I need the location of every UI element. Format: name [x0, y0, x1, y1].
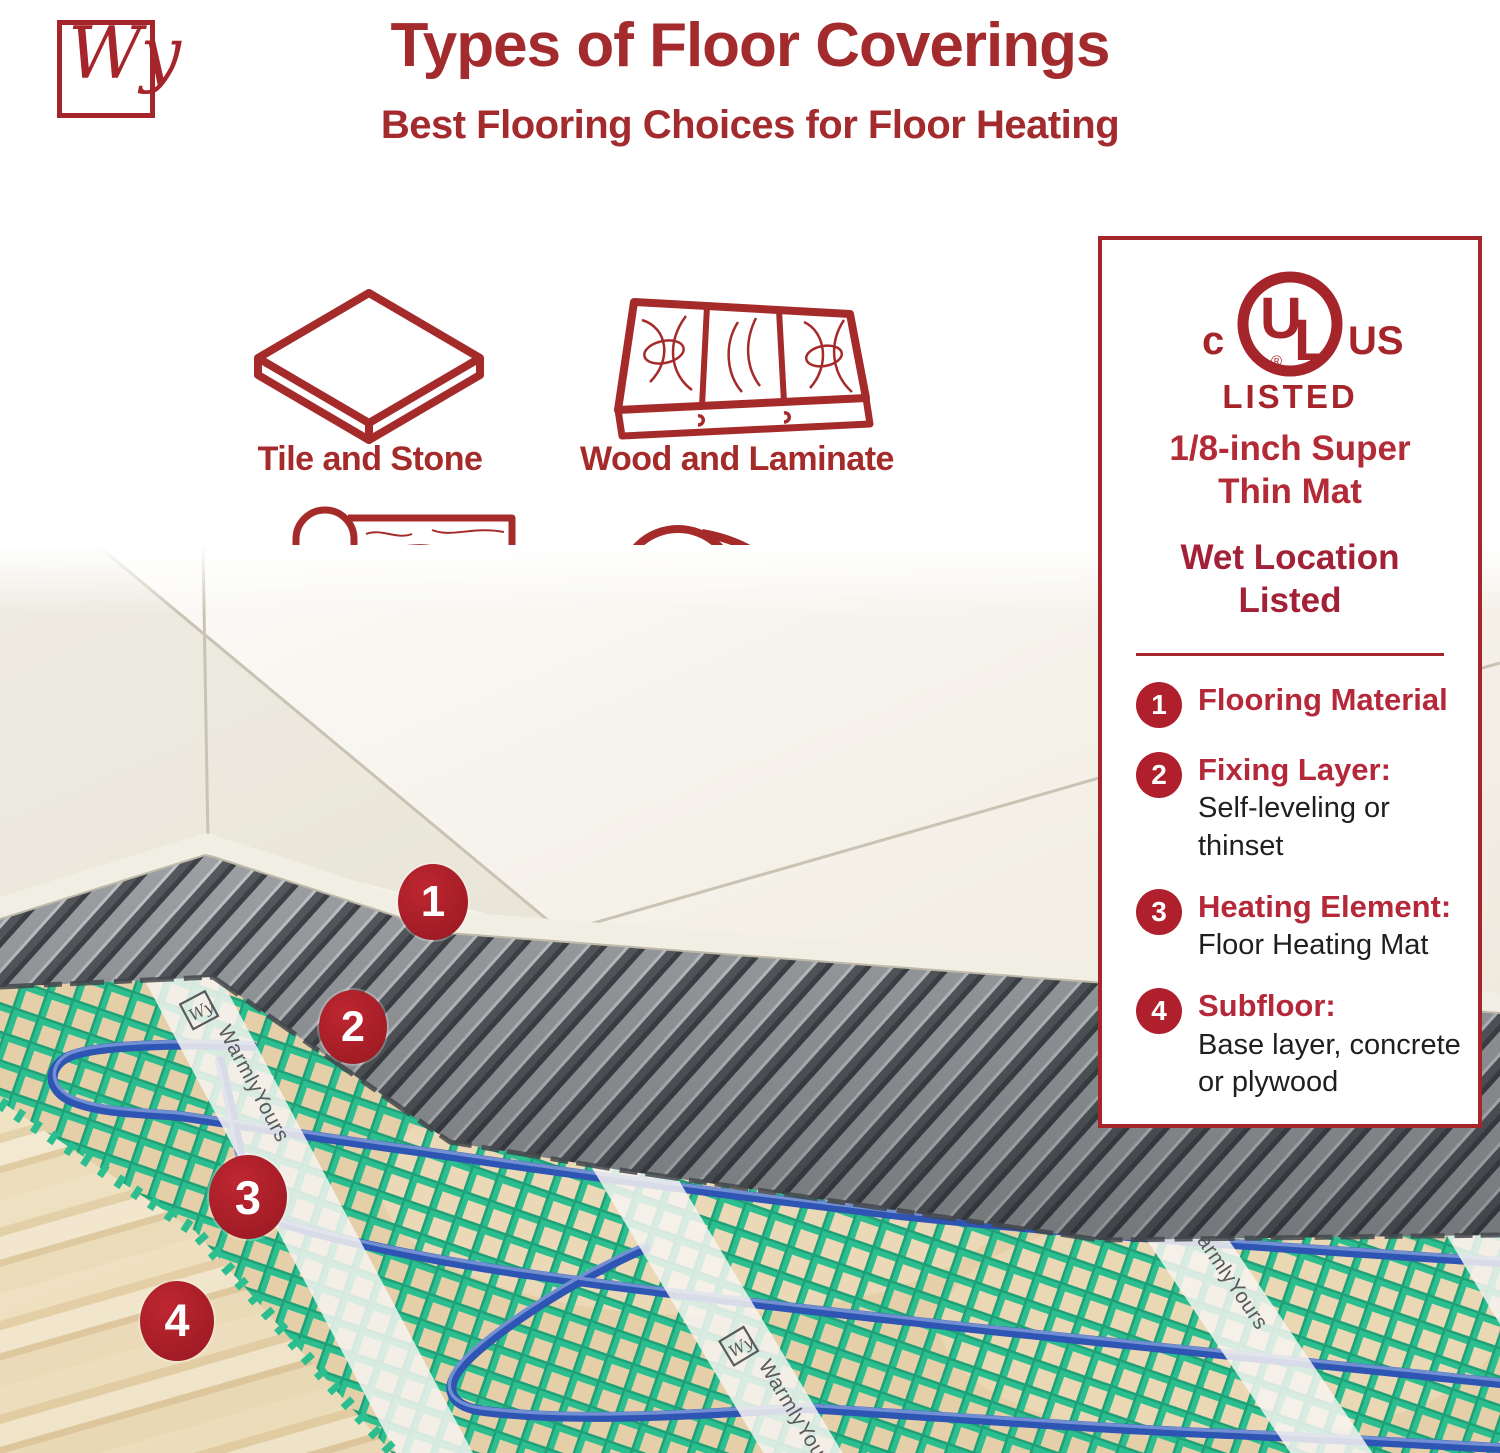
- layer-legend: 1 Flooring Material 2 Fixing Layer: Self…: [1136, 682, 1478, 1101]
- legend-item-subfloor: 4 Subfloor: Base layer, concrete or plyw…: [1136, 988, 1478, 1101]
- legend-body: Floor Heating Mat: [1198, 927, 1478, 964]
- feature-wet-location-line1: Wet Location: [1102, 537, 1478, 580]
- legend-number-badge: 4: [1136, 988, 1182, 1034]
- feature-thin-mat-line2: Thin Mat: [1102, 471, 1478, 514]
- ul-us-label: US: [1348, 319, 1404, 363]
- page-title: Types of Floor Coverings: [0, 10, 1500, 81]
- wood-and-laminate-label: Wood and Laminate: [557, 440, 917, 479]
- feature-thin-mat-line1: 1/8-inch Super: [1102, 428, 1478, 471]
- info-panel: U L ® c US LISTED 1/8-inch Super Thin Ma…: [1098, 236, 1482, 1128]
- legend-item-fixing-layer: 2 Fixing Layer: Self-leveling or thinset: [1136, 752, 1478, 865]
- feature-wet-location: Wet Location Listed: [1102, 537, 1478, 622]
- layer-marker-2-number: 2: [341, 1003, 365, 1052]
- legend-body: Self-leveling or thinset: [1198, 790, 1478, 864]
- legend-item-heating-element: 3 Heating Element: Floor Heating Mat: [1136, 889, 1478, 965]
- legend-number-badge: 3: [1136, 889, 1182, 935]
- layer-marker-1-number: 1: [421, 877, 445, 927]
- page-subtitle: Best Flooring Choices for Floor Heating: [0, 103, 1500, 148]
- legend-item-flooring-material: 1 Flooring Material: [1136, 682, 1478, 728]
- ul-letter-l: L: [1294, 308, 1329, 373]
- legend-heading: Fixing Layer:: [1198, 752, 1478, 788]
- layer-marker-3-number: 3: [235, 1170, 261, 1225]
- infographic-page: Wy Types of Floor Coverings Best Floorin…: [0, 0, 1500, 1453]
- layer-marker-2: 2: [319, 990, 387, 1064]
- layer-marker-4-number: 4: [164, 1295, 189, 1347]
- legend-number-badge: 1: [1136, 682, 1182, 728]
- panel-divider: [1136, 653, 1444, 656]
- layer-marker-4: 4: [140, 1281, 214, 1361]
- ul-c-label: c: [1202, 319, 1224, 363]
- ul-listed-label: LISTED: [1222, 378, 1357, 412]
- feature-wet-location-line2: Listed: [1102, 580, 1478, 623]
- ul-registered-symbol: ®: [1271, 353, 1282, 370]
- legend-heading: Subfloor:: [1198, 988, 1478, 1024]
- legend-body: Base layer, concrete or plywood: [1198, 1027, 1478, 1101]
- feature-thin-mat: 1/8-inch Super Thin Mat: [1102, 428, 1478, 513]
- ul-listed-mark: U L ® c US LISTED: [1174, 262, 1406, 412]
- tile-and-stone-label: Tile and Stone: [190, 440, 550, 479]
- layer-marker-3: 3: [209, 1155, 287, 1239]
- wood-and-laminate-icon: [598, 292, 880, 444]
- legend-number-badge: 2: [1136, 752, 1182, 798]
- tile-and-stone-icon: [250, 286, 488, 448]
- legend-heading: Flooring Material: [1198, 682, 1478, 718]
- legend-heading: Heating Element:: [1198, 889, 1478, 925]
- layer-marker-1: 1: [398, 864, 468, 940]
